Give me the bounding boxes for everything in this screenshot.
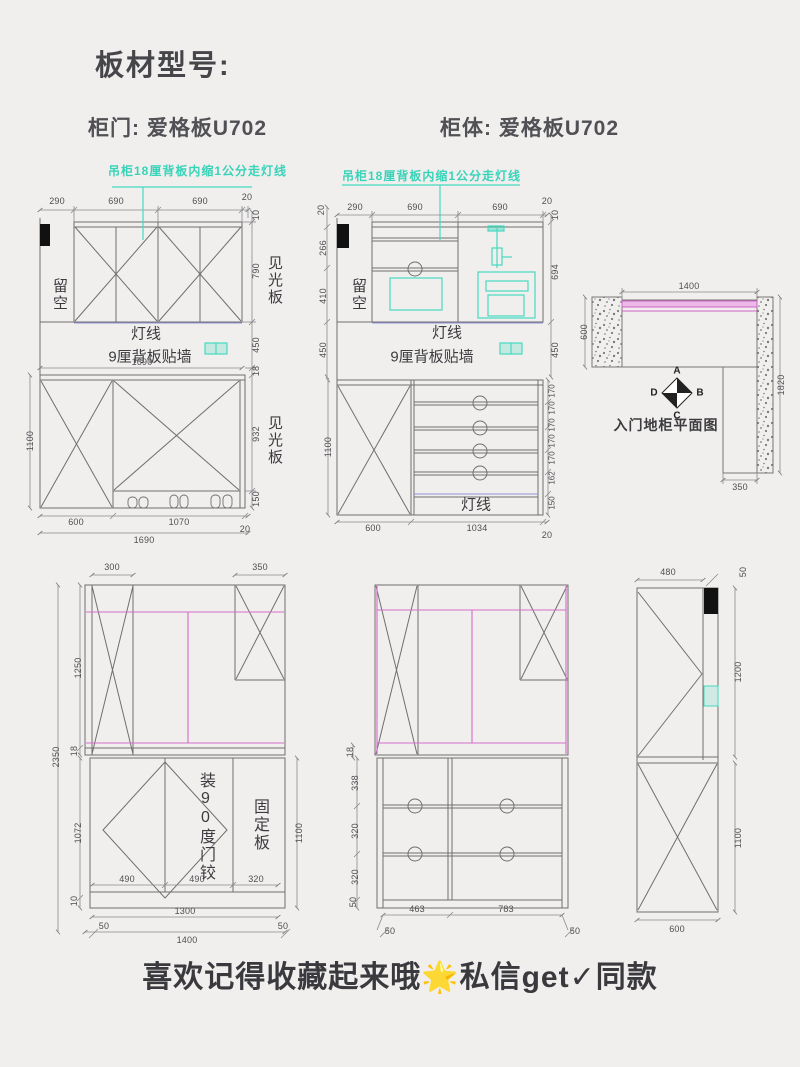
d1-dim: 1100 — [25, 431, 35, 451]
d4-dim: 18 — [69, 746, 79, 756]
footer-caption: 喜欢记得收藏起来哦🌟私信get✓同款 — [0, 952, 800, 996]
compass-a: A — [673, 366, 680, 377]
d6-black-block — [704, 588, 718, 614]
d6-dim: 480 — [660, 567, 676, 577]
d1-dim: 20 — [240, 524, 250, 534]
d2-dim: 690 — [492, 202, 508, 212]
page-title: 板材型号: — [95, 42, 231, 84]
d5-dim: 338 — [350, 775, 360, 791]
d2-annotation: 吊柜18厘背板内缩1公分走灯线 — [342, 167, 521, 184]
d1-dim: 150 — [251, 491, 261, 507]
d2-dim: 170 — [548, 451, 557, 464]
d1-dim: 450 — [251, 337, 261, 353]
d1-dim: 290 — [49, 196, 65, 206]
d2-dim: 20 — [542, 196, 552, 206]
d2-cabinet-outline — [337, 218, 543, 515]
d6-dim: 1100 — [733, 828, 743, 848]
d6-dim: 600 — [669, 924, 685, 934]
d1-dim: 690 — [192, 196, 208, 206]
d1-dim: 1690 — [134, 535, 155, 545]
d2-dim: 266 — [318, 240, 328, 256]
d2-dim: 1034 — [467, 523, 488, 533]
d3-dim: 350 — [732, 482, 748, 492]
d4-hinge-note: 装90度门铰 — [193, 772, 217, 882]
d1-dim: 10 — [251, 210, 261, 220]
d4-dim: 320 — [248, 874, 264, 884]
d2-dim: 410 — [318, 288, 328, 304]
d1-dim: 600 — [68, 517, 84, 527]
d5-dim: 463 — [409, 904, 425, 914]
d2-dim: 10 — [550, 210, 560, 220]
d4-pink-lines — [86, 612, 284, 743]
d1-dim-lines — [30, 206, 256, 533]
d5-dim: 320 — [350, 869, 360, 885]
d3-caption: 入门地柜平面图 — [614, 415, 719, 435]
shoes-icon — [128, 495, 232, 508]
d5-dim: 320 — [350, 823, 360, 839]
d2-dim: 20 — [316, 205, 326, 215]
d2-dim: 150 — [548, 496, 557, 509]
d6-teal-block — [704, 686, 718, 706]
d1-label-jianguangban: 见光板 — [264, 255, 285, 306]
d5-dim: 50 — [348, 897, 358, 907]
d4-dim: 50 — [99, 921, 109, 931]
d1-dim: 1070 — [169, 517, 190, 527]
d2-black-block — [337, 224, 349, 248]
d2-dim: 170 — [548, 384, 557, 397]
d2-dim: 290 — [347, 202, 363, 212]
d4-dim: 1400 — [177, 935, 198, 945]
d2-label-beiban: 9厘背板贴墙 — [390, 346, 473, 367]
d1-annotation: 吊柜18厘背板内缩1公分走灯线 — [108, 162, 287, 179]
d1-label-dengxian: 灯线 — [131, 323, 161, 344]
d4-dim: 1300 — [175, 906, 196, 916]
d6-dim-lines — [637, 574, 735, 920]
d3-dim: 1400 — [679, 281, 700, 291]
d1-dim: 1690 — [132, 357, 153, 367]
d5-dim: 783 — [498, 904, 514, 914]
d2-dim: 170 — [548, 418, 557, 431]
d1-black-block — [40, 224, 50, 246]
d2-dim: 20 — [542, 530, 552, 540]
d3-dim: 600 — [579, 324, 589, 340]
d2-dim: 694 — [550, 264, 560, 280]
d6-dim: 1200 — [733, 662, 743, 683]
d4-dim: 1072 — [73, 823, 83, 844]
d4-cabinet-outline — [85, 585, 285, 908]
d1-dim: 790 — [251, 263, 261, 279]
d2-label-dengxian: 灯线 — [432, 322, 462, 343]
d5-pink-lines — [377, 586, 566, 754]
d4-dim: 50 — [278, 921, 288, 931]
d4-dim: 350 — [252, 562, 268, 572]
d2-label-dengxian-2: 灯线 — [461, 494, 491, 515]
door-material-label: 柜门: 爱格板U702 — [88, 112, 267, 142]
d5-dim: 18 — [345, 747, 355, 757]
d4-dim: 490 — [119, 874, 135, 884]
compass-d: D — [650, 388, 657, 399]
d4-dim: 1250 — [73, 658, 83, 679]
d2-dim: 1100 — [323, 437, 333, 457]
compass-b: B — [696, 388, 703, 399]
d4-fixed-board-note: 固定板 — [247, 798, 271, 852]
d2-dim: 690 — [407, 202, 423, 212]
d2-dim: 450 — [550, 342, 560, 358]
d1-dim: 18 — [251, 366, 261, 376]
d2-dim: 162 — [548, 471, 557, 484]
d5-dim: 50 — [385, 926, 395, 936]
d2-dim: 450 — [318, 342, 328, 358]
d4-dim: 2350 — [51, 747, 61, 768]
d2-dim: 600 — [365, 523, 381, 533]
compass-icon — [662, 378, 692, 408]
d6-dim: 50 — [738, 567, 748, 577]
d4-dim: 10 — [69, 896, 79, 906]
d4-dim: 300 — [104, 562, 120, 572]
d1-dim: 20 — [242, 192, 252, 202]
d2-label-liukong: 留空 — [348, 278, 369, 312]
d1-dim: 690 — [108, 196, 124, 206]
body-material-label: 柜体: 爱格板U702 — [440, 112, 619, 142]
d2-dim: 170 — [548, 434, 557, 447]
drawing-linework — [0, 0, 800, 1067]
d1-label-liukong: 留空 — [49, 278, 70, 312]
d5-dim: 50 — [570, 926, 580, 936]
d1-label-jianguangban-2: 见光板 — [264, 415, 285, 466]
d3-dim: 1820 — [776, 375, 786, 396]
d4-dim: 1100 — [294, 823, 304, 843]
d6-cabinet-outline — [637, 588, 718, 912]
d1-dim: 932 — [251, 426, 261, 442]
d2-dim: 170 — [548, 401, 557, 414]
cabinet-drawing-sheet: 板材型号: 柜门: 爱格板U702 柜体: 爱格板U702 吊柜18厘背板内缩1… — [0, 0, 800, 1067]
